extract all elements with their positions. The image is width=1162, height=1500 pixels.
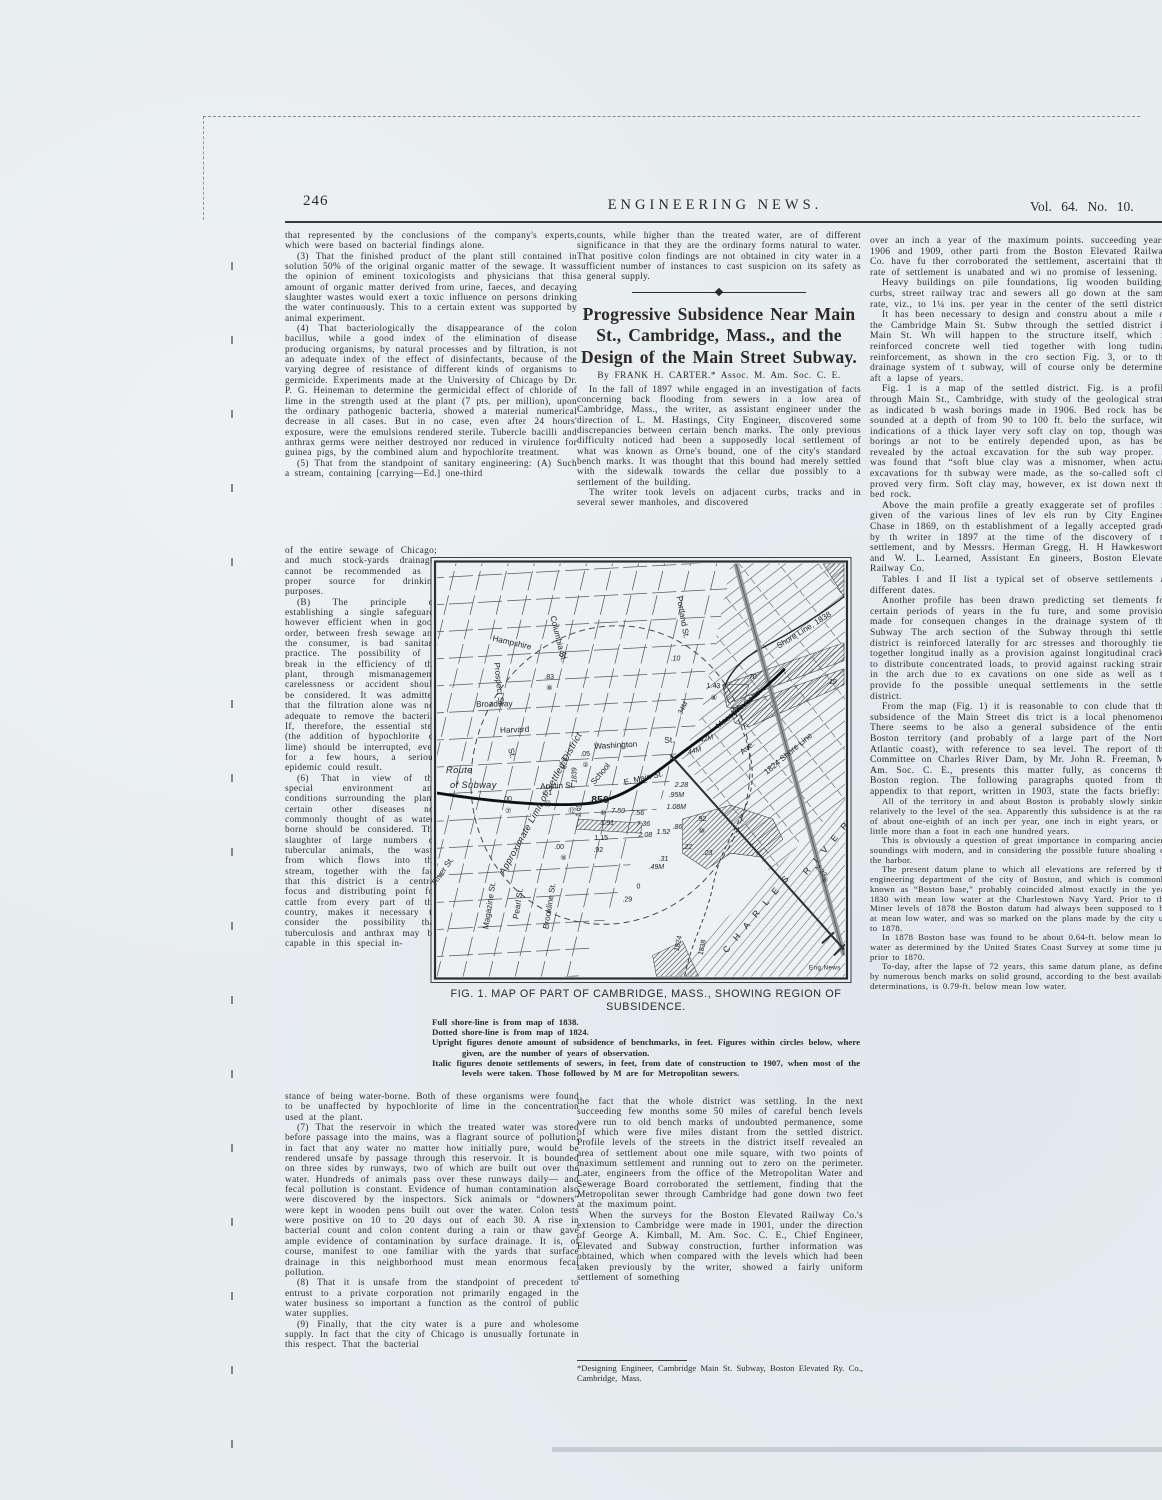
article-footnote: *Designing Engineer, Cambridge Main St. … — [577, 1360, 863, 1384]
map-label: .22 — [683, 844, 693, 851]
paragraph: Tables I and II list a typical set of ob… — [870, 575, 1162, 596]
quoted-report-extract: All of the territory in and about Boston… — [870, 797, 1162, 991]
map-label: .19 — [827, 679, 837, 686]
column-middle-top: counts, while higher than the treated wa… — [577, 231, 861, 509]
page-number: 246 — [303, 193, 329, 210]
map-label: ⑧ — [711, 694, 717, 702]
map-label: 1.69 — [575, 803, 582, 817]
scan-margin-tick — [231, 410, 233, 418]
paragraph: Heavy buildings on pile foundations, lig… — [870, 278, 1162, 310]
scan-margin-tick — [231, 1144, 233, 1152]
map-label: 1.08M — [667, 804, 687, 811]
paragraph: over an inch a year of the maximum point… — [870, 236, 1162, 278]
paragraph: of the entire sewage of Chicago; and muc… — [285, 546, 437, 598]
caption-note: Upright figures denote amount of subside… — [432, 1037, 860, 1057]
column-right: over an inch a year of the maximum point… — [870, 236, 1162, 992]
map-label: ⑩ — [699, 827, 705, 835]
paragraph: When the surveys for the Boston Elevated… — [577, 1211, 863, 1283]
scanned-journal-page: 246 ENGINEERING NEWS. Vol. 64. No. 10. t… — [0, 0, 1162, 1500]
paragraph: stance of being water-borne. Both of the… — [285, 1092, 579, 1123]
map-label: .51 — [542, 790, 552, 797]
scan-margin-tick — [231, 1070, 233, 1078]
map-label: 1.91 — [600, 820, 614, 827]
map-svg: HampshireSt.Columbia St.Portland St.Pros… — [430, 556, 852, 984]
map-label: .850 — [588, 794, 609, 806]
footnote-rule — [577, 1360, 687, 1361]
paragraph: In 1878 Boston base was found to be abou… — [870, 933, 1162, 962]
map-label: 7.56 — [630, 810, 644, 817]
map-label: ⑫ — [568, 807, 575, 815]
map-label: of Subway — [450, 780, 498, 790]
figure-caption: FIG. 1. MAP OF PART OF CAMBRIDGE, MASS.,… — [432, 988, 860, 1078]
map-label: .00 — [554, 844, 564, 851]
figure-caption-notes: Full shore-line is from map of 1838. Dot… — [432, 1017, 860, 1078]
paragraph: (5) That from the standpoint of sanitary… — [285, 459, 577, 480]
scan-crop-line-top — [203, 116, 1140, 117]
map-label: .05 — [580, 751, 590, 758]
paragraph: (8) That it is unsafe from the standpoin… — [285, 1278, 579, 1319]
scan-margin-tick — [231, 1366, 233, 1374]
map-label: 1839 — [571, 767, 578, 783]
map-label: ⑩ — [600, 809, 606, 817]
paragraph: From the map (Fig. 1) it is reasonable t… — [870, 702, 1162, 797]
scan-margin-tick — [231, 558, 233, 566]
scan-margin-tick — [231, 996, 233, 1004]
paragraph: It has been necessary to design and cons… — [870, 310, 1162, 384]
paragraph: This is obviously a question of great im… — [870, 836, 1162, 865]
map-label: .86 — [673, 824, 683, 831]
paragraph: The present datum plane to which all ele… — [870, 865, 1162, 933]
map-label: 2.08 — [637, 832, 652, 839]
column-left-top: that represented by the conclusions of t… — [285, 231, 577, 479]
map-label: .92 — [697, 816, 707, 823]
paragraph: (3) That the finished product of the pla… — [285, 252, 577, 324]
figure-caption-title: FIG. 1. MAP OF PART OF CAMBRIDGE, MASS.,… — [432, 988, 860, 1014]
scan-margin-tick — [231, 1440, 233, 1448]
header-rule — [285, 221, 1162, 223]
map-label: 2.28 — [674, 782, 689, 789]
paragraph: (B) The principle of establishing a sing… — [285, 598, 437, 774]
map-label: .92 — [593, 847, 603, 854]
map-label: 1.43 — [707, 683, 721, 690]
scan-margin-tick — [231, 1218, 233, 1226]
paragraph: Fig. 1 is a map of the settled district.… — [870, 384, 1162, 501]
paragraph: In the fall of 1897 while engaged in an … — [577, 385, 861, 488]
column-left-narrow: of the entire sewage of Chicago; and muc… — [285, 546, 437, 949]
column-left-bottom: stance of being water-borne. Both of the… — [285, 1092, 579, 1351]
map-label: .10 — [671, 656, 681, 663]
map-label: 7.36 — [636, 821, 650, 828]
footnote-text: *Designing Engineer, Cambridge Main St. … — [577, 1364, 863, 1384]
map-label: .29 — [622, 896, 632, 903]
map-label: .49M — [649, 864, 665, 871]
scan-crop-line-left — [203, 116, 204, 220]
scan-margin-tick — [231, 922, 233, 930]
map-label: Eng.News — [809, 964, 841, 971]
paragraph: The writer took levels on adjacent curbs… — [577, 488, 861, 509]
scan-margin-tick — [231, 336, 233, 344]
caption-note: Italic figures denote settlements of sew… — [432, 1058, 860, 1078]
paragraph: All of the territory in and about Boston… — [870, 797, 1162, 836]
column-middle-bottom: the fact that the whole district was set… — [577, 1097, 863, 1283]
map-label: .31 — [659, 856, 669, 863]
paragraph: Above the main profile a greatly exagger… — [870, 501, 1162, 575]
map-label: 7.50 — [611, 808, 625, 815]
scan-margin-tick — [231, 700, 233, 708]
scan-margin-tick — [231, 262, 233, 270]
article-title: Progressive Subsidence Near Main St., Ca… — [579, 304, 859, 369]
map-label: ⑧ — [546, 684, 552, 692]
map-label: 0 — [636, 883, 640, 890]
article-byline: By FRANK H. CARTER.* Assoc. M. Am. Soc. … — [577, 371, 861, 381]
caption-note: Dotted shore-line is from map of 1824. — [432, 1027, 860, 1037]
map-label: Harvard — [500, 725, 530, 735]
map-label: .23 — [703, 850, 713, 857]
paragraph: the fact that the whole district was set… — [577, 1097, 863, 1211]
paragraph: (6) That in view of the special environm… — [285, 774, 437, 950]
map-label: ② — [582, 762, 588, 769]
scan-margin-tick — [231, 774, 233, 782]
map-label: .00 — [502, 796, 512, 803]
section-divider — [632, 286, 806, 300]
map-label: 1.52 — [657, 829, 671, 836]
scan-margin-tick — [231, 1292, 233, 1300]
caption-note: Full shore-line is from map of 1838. — [432, 1017, 860, 1027]
map-label: .95M — [669, 792, 685, 799]
scan-margin-tick — [231, 848, 233, 856]
divider-ornament — [715, 288, 723, 296]
scan-margin-tick — [231, 484, 233, 492]
map-label: ⑦ — [505, 807, 511, 815]
map-label: .83 — [544, 674, 554, 681]
paragraph: counts, while higher than the treated wa… — [577, 231, 861, 283]
paragraph: (9) Finally, that the city water is a pu… — [285, 1320, 579, 1351]
figure-map-cambridge: HampshireSt.Columbia St.Portland St.Pros… — [430, 556, 852, 984]
map-label: .70 — [747, 674, 757, 681]
scan-edge-band — [552, 1447, 1162, 1452]
map-label: 1.15 — [594, 835, 608, 842]
map-label: ⑨ — [560, 855, 566, 862]
paragraph: (7) That the reservoir in which the trea… — [285, 1123, 579, 1278]
paragraph: that represented by the conclusions of t… — [285, 231, 577, 252]
journal-title: ENGINEERING NEWS. — [500, 197, 930, 214]
map-label: Broadway — [476, 699, 514, 709]
map-label: Route — [446, 765, 473, 775]
paragraph: (4) That bacteriologically the disappear… — [285, 324, 577, 458]
volume-issue: Vol. 64. No. 10. — [1030, 199, 1134, 215]
map-label: 626 — [561, 757, 568, 769]
paragraph: Another profile has been drawn predictin… — [870, 596, 1162, 702]
map-label: ⑱ — [544, 800, 551, 808]
map-label: St. — [664, 735, 674, 745]
paragraph: To-day, after the lapse of 72 years, thi… — [870, 962, 1162, 991]
